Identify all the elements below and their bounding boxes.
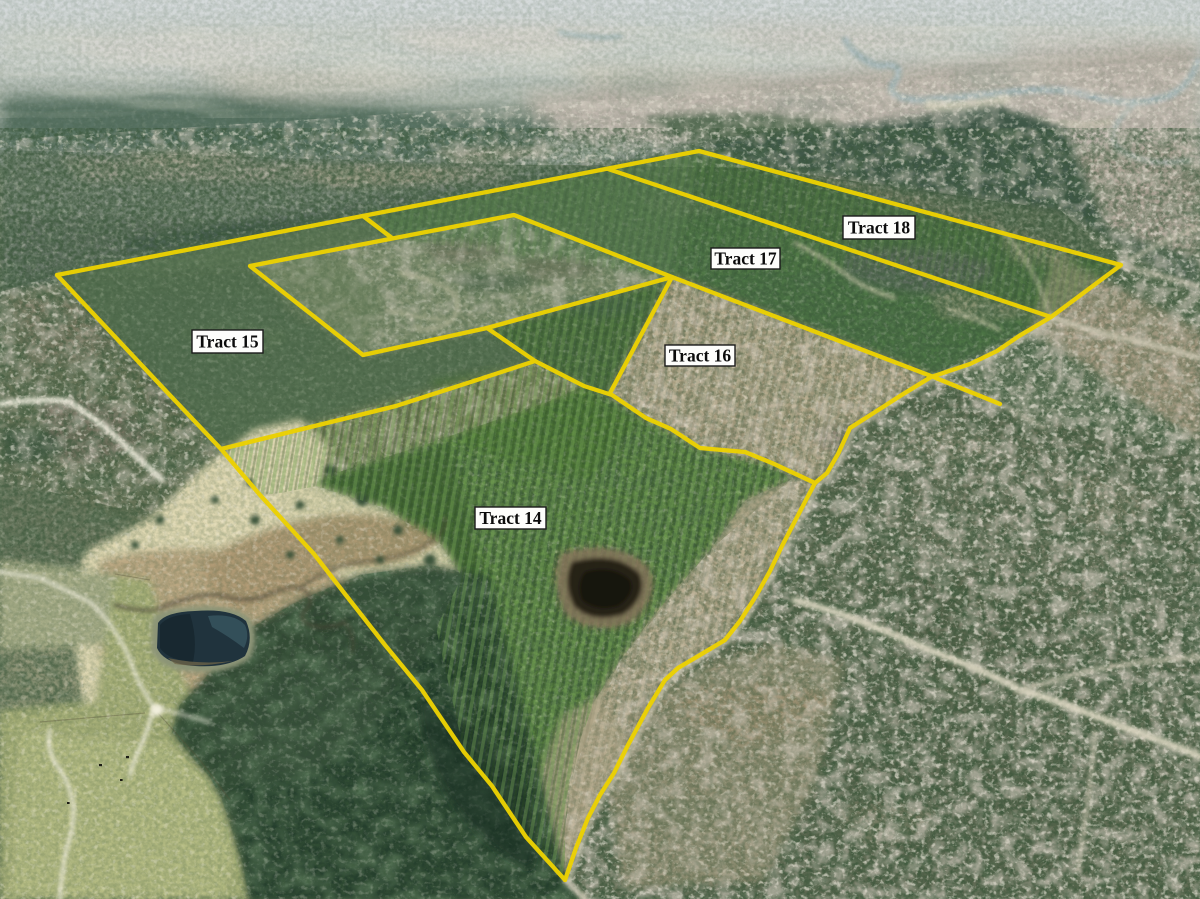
svg-text:Tract 17: Tract 17 [714, 249, 777, 269]
svg-text:Tract 14: Tract 14 [479, 508, 542, 528]
svg-text:Tract 16: Tract 16 [669, 346, 732, 366]
svg-text:Tract 18: Tract 18 [848, 218, 911, 238]
svg-text:Tract 15: Tract 15 [196, 332, 259, 352]
